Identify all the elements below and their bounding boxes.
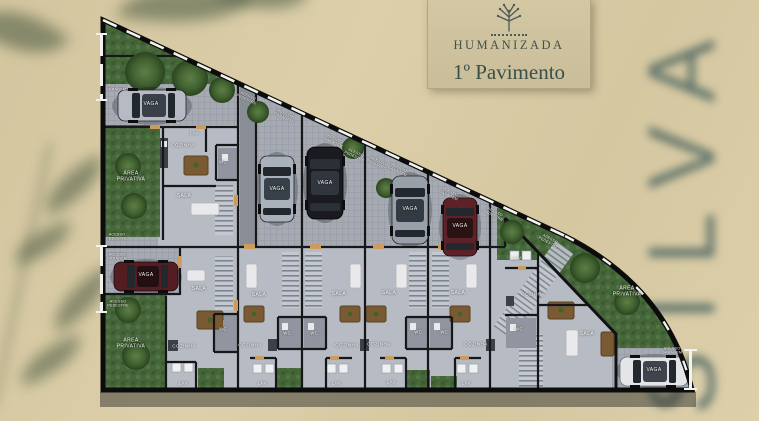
car-bay-2 xyxy=(303,143,347,223)
tree-logo-icon xyxy=(492,3,526,33)
car-bay-4 xyxy=(439,194,481,260)
car-bay-3 xyxy=(388,172,432,248)
street-shadow xyxy=(100,392,696,407)
header-panel: HUMANIZADA 1º Pavimento xyxy=(427,0,591,89)
floor-plan-drawing xyxy=(0,0,759,421)
car-bottom-left xyxy=(110,259,182,295)
plan-interior xyxy=(95,12,705,394)
floor-plan-scene: SILVA xyxy=(0,0,759,421)
car-top-left xyxy=(112,87,192,125)
brand-name: HUMANIZADA xyxy=(428,38,590,53)
page-title: 1º Pavimento xyxy=(428,60,590,85)
logo-roots-ornament xyxy=(491,34,527,36)
grass-area-privativa-top xyxy=(103,125,160,237)
car-bay-1 xyxy=(256,152,298,226)
